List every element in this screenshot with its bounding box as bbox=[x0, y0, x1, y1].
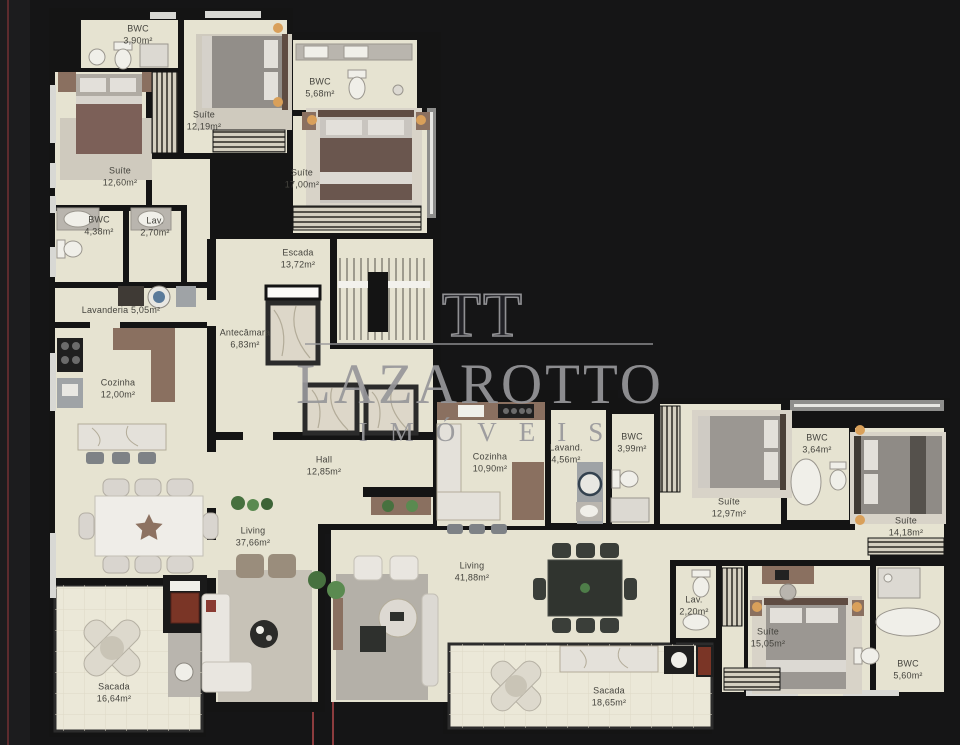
red-guide-line-left bbox=[7, 0, 9, 745]
bed-suite-1418 bbox=[850, 425, 946, 525]
elevator-door bbox=[266, 286, 320, 299]
floor-plan-image: TT LAZAROTTO IMÓVEIS BWC3,90m²Suíte12,19… bbox=[0, 0, 960, 745]
floor-plan-drawing: TT LAZAROTTO IMÓVEIS bbox=[0, 0, 960, 745]
bed-suite-1260 bbox=[58, 72, 160, 180]
bed-suite-1297 bbox=[692, 410, 792, 498]
balcony-right-counter bbox=[560, 646, 712, 676]
bed-suite-1219 bbox=[196, 23, 292, 130]
red-guide-line-bottom-2 bbox=[332, 700, 334, 745]
watermark-subtitle: IMÓVEIS bbox=[359, 417, 626, 447]
watermark-logo: TT bbox=[442, 279, 524, 350]
watermark-brand: LAZAROTTO bbox=[296, 353, 664, 416]
bed-suite-1700 bbox=[302, 108, 430, 208]
living-left-furniture bbox=[163, 554, 312, 702]
